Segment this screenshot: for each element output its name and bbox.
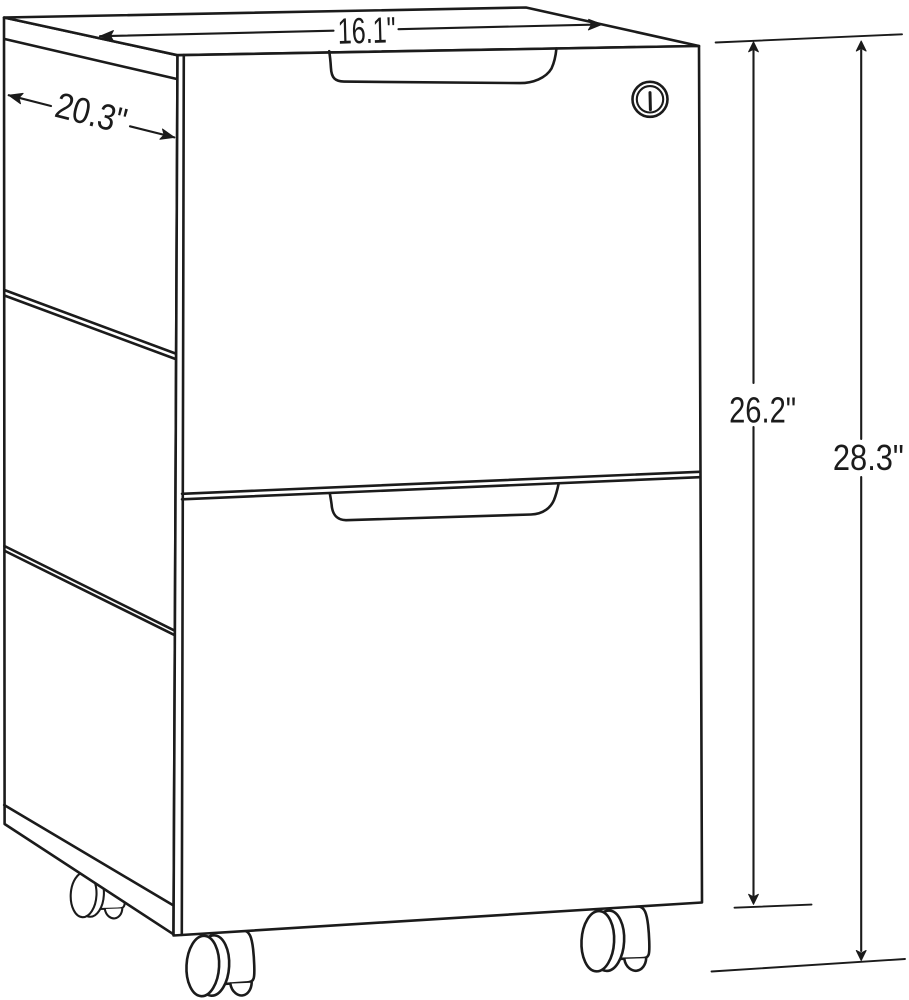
svg-text:26.2": 26.2" bbox=[729, 390, 796, 431]
svg-text:28.3": 28.3" bbox=[833, 437, 904, 478]
svg-text:16.1": 16.1" bbox=[337, 9, 396, 52]
